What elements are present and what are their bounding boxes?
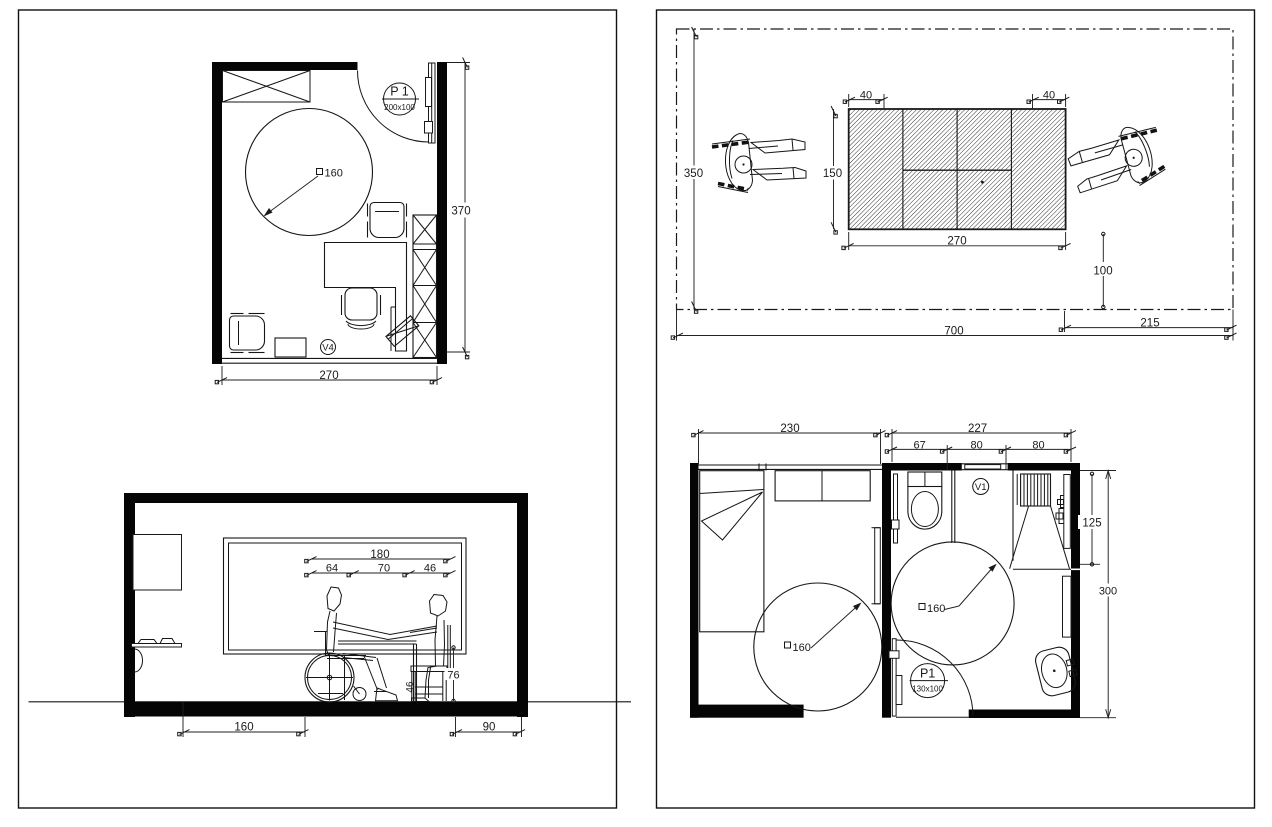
svg-text:160: 160 — [927, 603, 945, 615]
svg-text:80: 80 — [1032, 440, 1044, 452]
svg-text:270: 270 — [319, 370, 338, 382]
svg-text:300: 300 — [1099, 586, 1117, 598]
svg-text:200x100: 200x100 — [384, 103, 415, 112]
svg-text:80: 80 — [970, 440, 982, 452]
svg-text:64: 64 — [326, 563, 338, 575]
svg-text:46: 46 — [405, 681, 416, 693]
svg-text:46: 46 — [424, 563, 436, 575]
svg-text:67: 67 — [913, 440, 925, 452]
svg-text:180: 180 — [370, 549, 389, 561]
svg-text:160: 160 — [234, 722, 253, 734]
svg-text:227: 227 — [968, 423, 987, 435]
svg-text:160: 160 — [325, 168, 343, 180]
svg-text:70: 70 — [378, 563, 390, 575]
svg-text:V4: V4 — [322, 343, 334, 354]
svg-text:150: 150 — [823, 168, 842, 180]
svg-text:P 1: P 1 — [390, 85, 409, 99]
svg-text:P1: P1 — [920, 667, 935, 681]
svg-text:100: 100 — [1093, 265, 1112, 277]
svg-text:230: 230 — [780, 423, 799, 435]
svg-text:90: 90 — [483, 722, 496, 734]
svg-text:125: 125 — [1082, 518, 1101, 530]
svg-text:270: 270 — [947, 236, 966, 248]
svg-text:130x100: 130x100 — [912, 685, 943, 694]
svg-text:76: 76 — [447, 670, 459, 682]
svg-text:215: 215 — [1140, 317, 1159, 329]
svg-text:40: 40 — [1043, 89, 1055, 101]
svg-text:700: 700 — [944, 325, 963, 337]
svg-text:V1: V1 — [975, 482, 987, 493]
svg-text:350: 350 — [684, 168, 703, 180]
svg-text:40: 40 — [860, 89, 872, 101]
svg-text:160: 160 — [793, 642, 811, 654]
svg-text:370: 370 — [451, 206, 470, 218]
